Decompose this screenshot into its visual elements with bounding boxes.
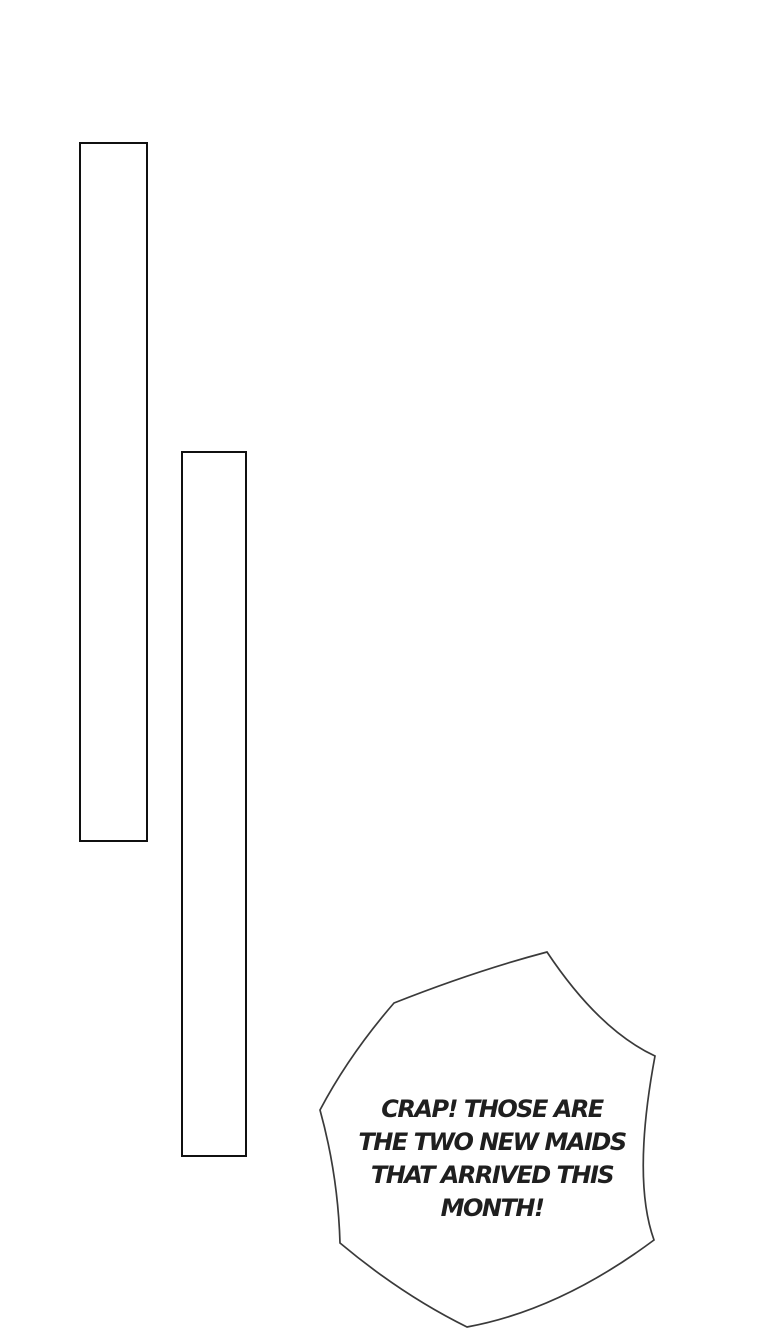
speech-bubble-text-line: MONTH!	[331, 1192, 653, 1225]
speech-bubble-text: CRAP! THOSE ARE THE TWO NEW MAIDS THAT A…	[331, 1093, 653, 1225]
speech-bubble-text-line: CRAP! THOSE ARE	[331, 1093, 653, 1126]
speech-bubble-text-line: THE TWO NEW MAIDS	[331, 1126, 653, 1159]
panel-outline-left	[79, 142, 148, 842]
comic-page: CRAP! THOSE ARE THE TWO NEW MAIDS THAT A…	[0, 0, 768, 1338]
speech-bubble-text-line: THAT ARRIVED THIS	[331, 1159, 653, 1192]
panel-outline-right	[181, 451, 247, 1157]
